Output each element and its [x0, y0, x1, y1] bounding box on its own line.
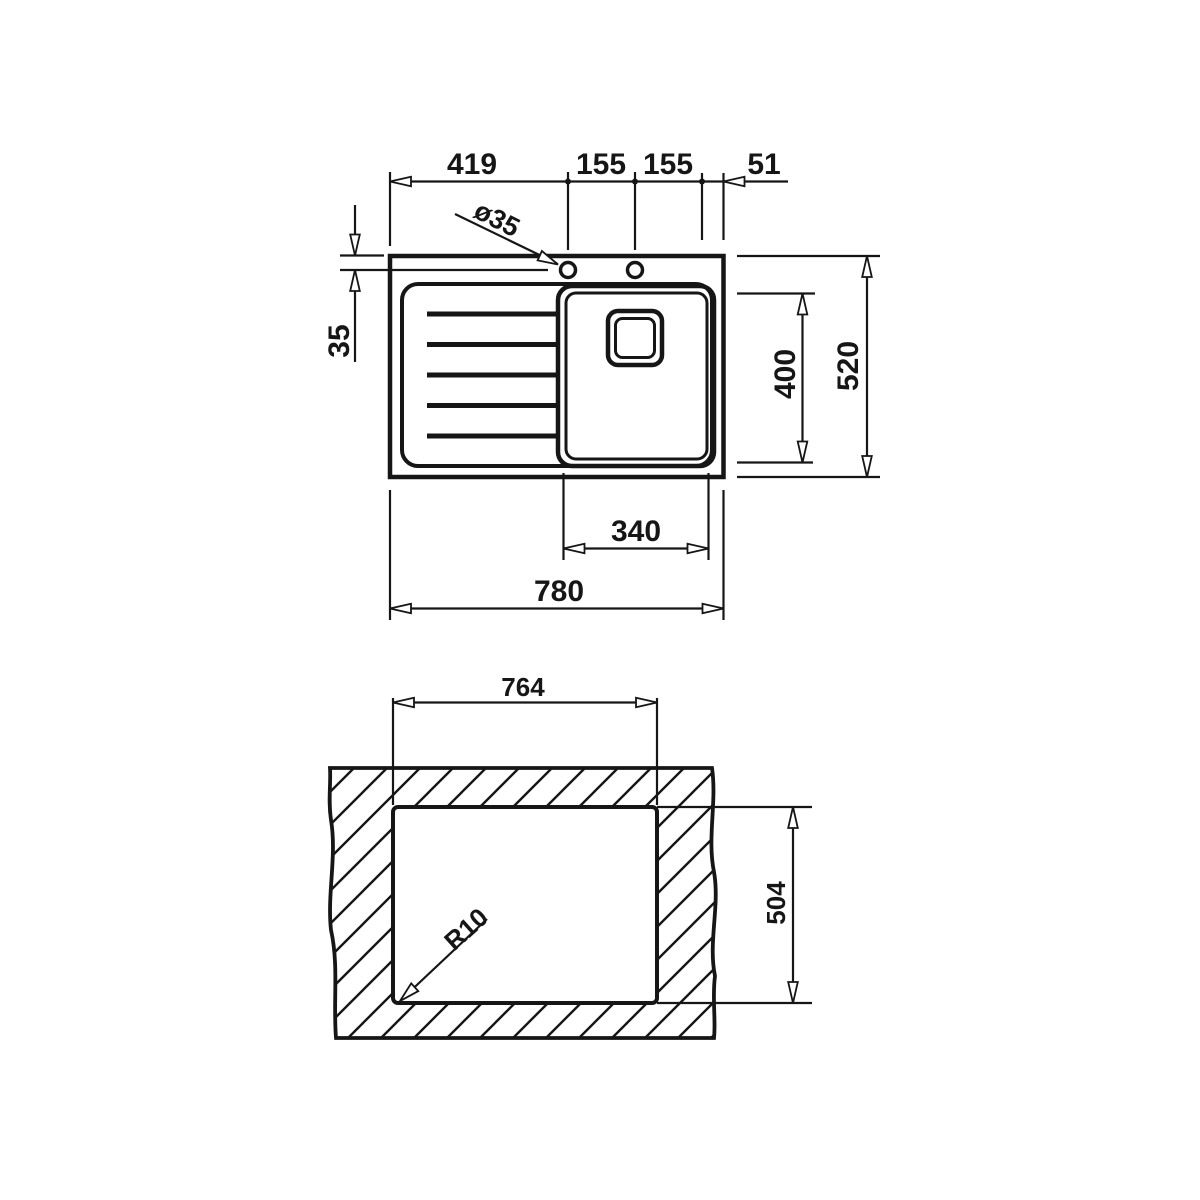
drainboard-ribs	[427, 314, 556, 436]
faucet-holes	[561, 263, 643, 278]
dim-label-520: 520	[832, 341, 865, 391]
arrow-left-icon	[724, 177, 745, 187]
arrow-down-icon	[862, 456, 872, 477]
arrow-left-icon	[564, 544, 585, 554]
dim-520: 520	[737, 256, 880, 477]
arrow-down-icon	[788, 982, 798, 1003]
dim-label-419: 419	[447, 148, 497, 181]
dim-label-400: 400	[769, 349, 802, 399]
dim-chain-top: 419 155 155 51	[390, 148, 788, 250]
cutout-rect	[393, 807, 657, 1003]
arrow-up-icon	[350, 270, 360, 291]
arrow-left-icon	[390, 177, 411, 187]
dim-label-51: 51	[747, 148, 780, 181]
drawing-page: 419 155 155 51 ø35 35 400	[0, 0, 1200, 1200]
dim-340: 340	[564, 473, 709, 560]
arrow-right-icon	[636, 698, 657, 708]
plan-view: 419 155 155 51 ø35 35 400	[323, 148, 880, 620]
dim-label-155-left: 155	[576, 148, 626, 181]
drain-square	[608, 311, 662, 365]
dim-780: 780	[390, 490, 724, 620]
arrow-left-icon	[393, 698, 414, 708]
arrow-down-icon	[350, 235, 360, 256]
worktop-slab	[330, 768, 716, 1038]
cutout-view: 764 504 R10	[330, 672, 812, 1038]
arrow-down-icon	[798, 442, 808, 463]
dim-label-35: 35	[323, 324, 356, 357]
faucet-hole-right	[628, 263, 643, 278]
dim-label-504: 504	[761, 881, 791, 925]
dim-label-155-right: 155	[643, 148, 693, 181]
dim-label-340: 340	[611, 515, 661, 548]
sink-technical-drawing: 419 155 155 51 ø35 35 400	[0, 0, 1200, 1200]
dim-label-764: 764	[501, 672, 545, 702]
dim-label-780: 780	[534, 575, 584, 608]
arrow-up-icon	[862, 256, 872, 277]
arrow-right-icon	[688, 544, 709, 554]
arrow-up-icon	[788, 807, 798, 828]
dim-label-hole-diameter: ø35	[469, 195, 524, 243]
arrow-left-icon	[390, 604, 411, 614]
arrow-right-icon	[703, 604, 724, 614]
dim-400: 400	[737, 294, 815, 463]
arrow-up-icon	[798, 294, 808, 315]
faucet-hole-left	[561, 263, 576, 278]
